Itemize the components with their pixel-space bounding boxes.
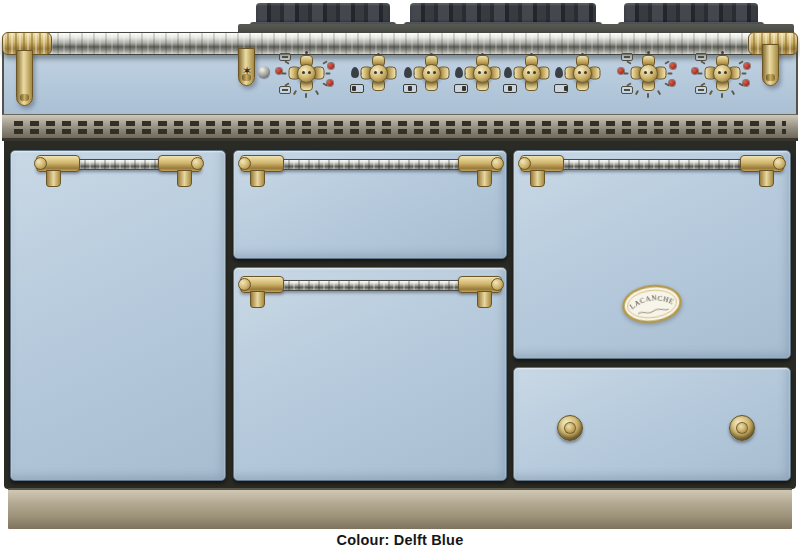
dial-tick bbox=[664, 60, 669, 64]
burner-knob-5 bbox=[549, 47, 615, 99]
burner-selector-icon bbox=[503, 84, 517, 93]
handle-bracket bbox=[240, 155, 284, 172]
vent-slots-row bbox=[14, 129, 786, 134]
flame-icon bbox=[455, 67, 463, 78]
oven-function-icon bbox=[695, 53, 707, 61]
dial-tick bbox=[731, 89, 735, 94]
handle-bracket bbox=[158, 155, 202, 172]
knob-center bbox=[473, 64, 492, 83]
dial-tick bbox=[282, 72, 287, 74]
dial-tick bbox=[624, 72, 629, 74]
ignition-icon bbox=[258, 66, 270, 78]
drawer-knob-right bbox=[729, 415, 755, 441]
oven-knob-right bbox=[689, 47, 755, 99]
indicator-light bbox=[692, 68, 698, 74]
handle-bracket bbox=[740, 155, 784, 172]
drawer-knob-left bbox=[557, 415, 583, 441]
selector-segment bbox=[352, 86, 356, 91]
middle-oven-handle bbox=[240, 276, 502, 310]
indicator-light bbox=[618, 68, 624, 74]
dial-zero-mark bbox=[305, 51, 308, 54]
dial-tick bbox=[322, 60, 327, 64]
handle-bracket bbox=[240, 276, 284, 293]
handle-bar bbox=[252, 159, 490, 170]
dial-tick bbox=[721, 93, 723, 98]
oven-function-icon bbox=[621, 86, 633, 94]
dial-tick bbox=[742, 72, 747, 74]
caption: Colour: Delft Blue bbox=[0, 532, 800, 548]
knob-center bbox=[639, 64, 658, 83]
oven-function-icon bbox=[621, 53, 633, 61]
burner-selector-icon bbox=[454, 84, 468, 93]
flame-icon bbox=[504, 67, 512, 78]
dial-tick bbox=[657, 89, 661, 94]
flame-icon bbox=[404, 67, 412, 78]
handle-bracket bbox=[458, 276, 502, 293]
selector-segment bbox=[462, 86, 466, 91]
indicator-light bbox=[327, 80, 333, 86]
handle-bracket bbox=[36, 155, 80, 172]
star-icon: ✶ bbox=[240, 64, 254, 78]
middle-drawer-handle bbox=[240, 155, 502, 189]
knob-center bbox=[573, 64, 592, 83]
dial-tick bbox=[305, 93, 307, 98]
right-oven-handle bbox=[520, 155, 784, 189]
handle-bar bbox=[532, 159, 772, 170]
vent-grille bbox=[2, 114, 798, 141]
knob-center bbox=[522, 64, 541, 83]
left-cupboard-door bbox=[10, 150, 226, 481]
selector-segment bbox=[564, 86, 568, 91]
dial-tick bbox=[738, 60, 743, 64]
plinth bbox=[8, 488, 792, 529]
burner-selector-icon bbox=[403, 84, 417, 93]
dial-tick bbox=[709, 89, 713, 94]
left-door-handle bbox=[36, 155, 202, 189]
flame-icon bbox=[555, 67, 563, 78]
dial-tick bbox=[668, 72, 673, 74]
dial-tick bbox=[315, 89, 319, 94]
dial-tick bbox=[326, 72, 331, 74]
flame-icon bbox=[351, 67, 359, 78]
burner-selector-icon bbox=[554, 84, 568, 93]
dial-tick bbox=[698, 72, 703, 74]
product-photo: ✶ LA bbox=[0, 0, 800, 554]
indicator-light bbox=[670, 63, 676, 69]
knob-center bbox=[297, 64, 316, 83]
burner-selector-icon bbox=[350, 84, 364, 93]
handle-bar bbox=[252, 280, 490, 291]
handle-bracket bbox=[520, 155, 564, 172]
oven-function-icon bbox=[695, 86, 707, 94]
selector-segment bbox=[408, 86, 412, 91]
rail-bracket-right bbox=[762, 44, 779, 86]
dial-tick bbox=[293, 89, 297, 94]
indicator-light bbox=[743, 80, 749, 86]
selector-segment bbox=[508, 86, 512, 91]
indicator-light bbox=[669, 80, 675, 86]
dial-zero-mark bbox=[721, 51, 724, 54]
indicator-light bbox=[328, 63, 334, 69]
dial-tick bbox=[647, 93, 649, 98]
oven-knob-center bbox=[615, 47, 681, 99]
lacanche-badge-art: LACANCHE bbox=[619, 280, 685, 327]
oven-function-icon bbox=[279, 53, 291, 61]
oven-knob-left bbox=[273, 47, 339, 99]
dial-tick bbox=[635, 89, 639, 94]
indicator-light bbox=[744, 63, 750, 69]
knob-center bbox=[369, 64, 388, 83]
dial-zero-mark bbox=[647, 51, 650, 54]
lacanche-badge: LACANCHE bbox=[619, 280, 685, 327]
knob-center bbox=[422, 64, 441, 83]
rail-bracket-left bbox=[16, 50, 33, 106]
knob-center bbox=[713, 64, 732, 83]
vent-slots-row bbox=[14, 121, 786, 126]
handle-bracket bbox=[458, 155, 502, 172]
indicator-light bbox=[276, 68, 282, 74]
oven-function-icon bbox=[279, 86, 291, 94]
